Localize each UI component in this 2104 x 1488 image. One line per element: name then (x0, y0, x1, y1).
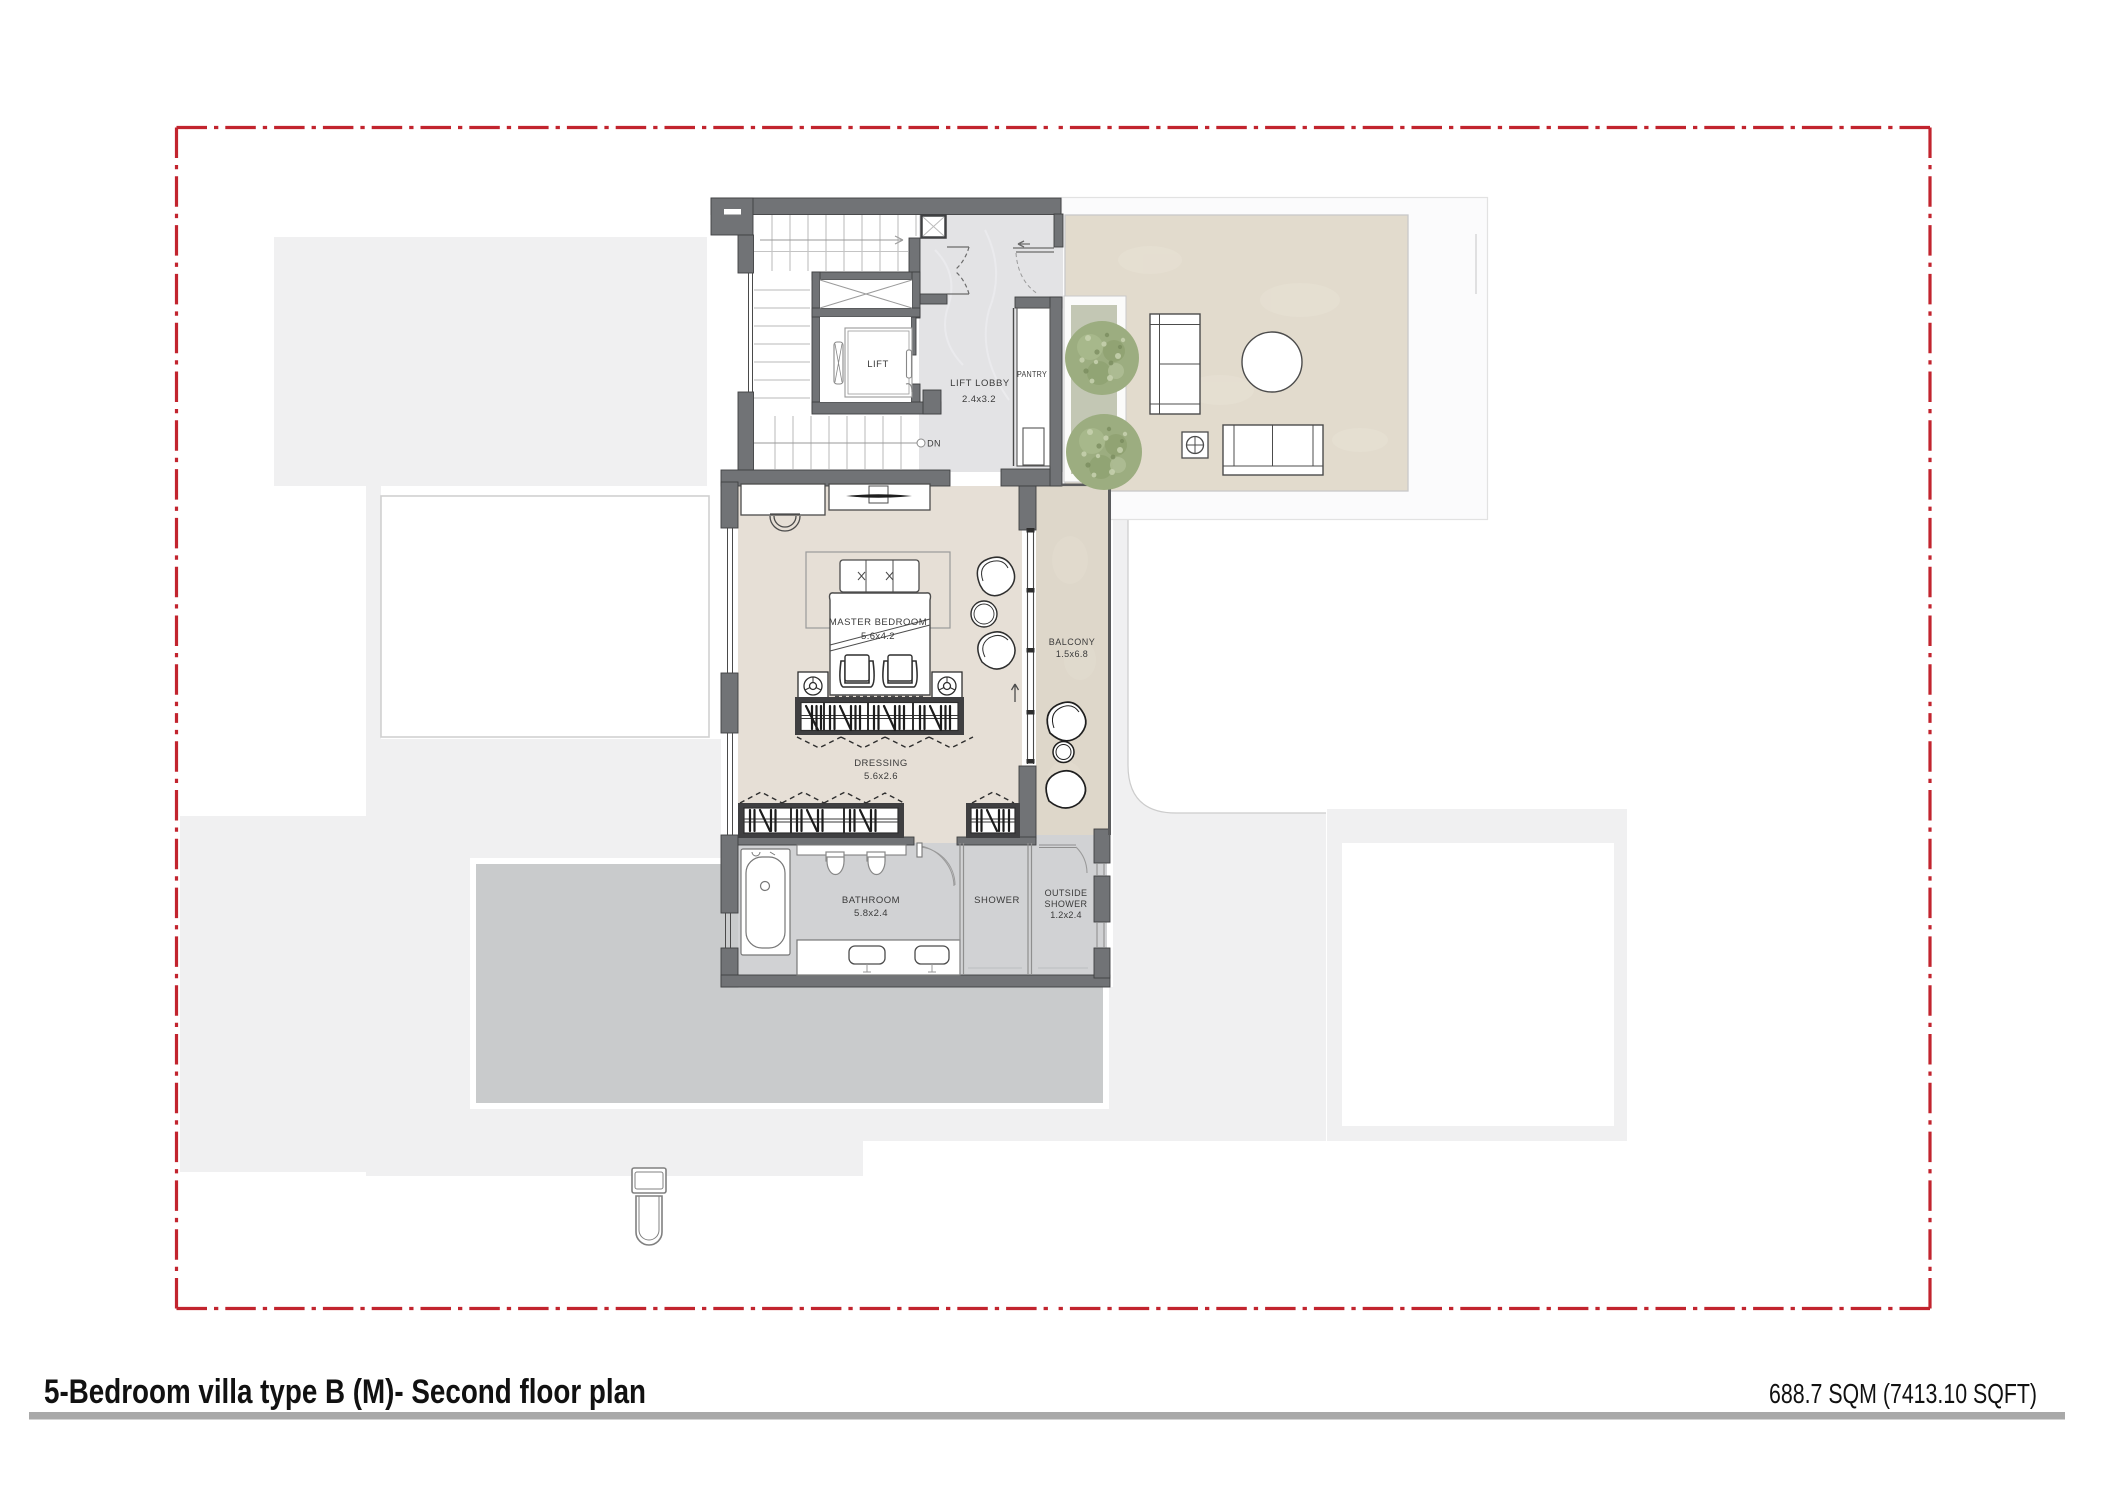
svg-text:5.8x2.4: 5.8x2.4 (854, 908, 888, 919)
svg-text:OUTSIDE: OUTSIDE (1045, 888, 1088, 898)
svg-text:SHOWER: SHOWER (974, 895, 1020, 906)
svg-text:LIFT: LIFT (867, 359, 889, 370)
svg-text:5.6x4.2: 5.6x4.2 (861, 631, 895, 642)
svg-text:SHOWER: SHOWER (1045, 899, 1088, 909)
svg-text:PANTRY: PANTRY (1017, 370, 1047, 379)
svg-text:2.4x3.2: 2.4x3.2 (962, 394, 996, 405)
svg-text:688.7 SQM (7413.10 SQFT): 688.7 SQM (7413.10 SQFT) (1769, 1378, 2037, 1409)
svg-text:MASTER BEDROOM: MASTER BEDROOM (829, 617, 927, 628)
svg-text:DRESSING: DRESSING (854, 758, 908, 769)
svg-text:1.2x2.4: 1.2x2.4 (1050, 910, 1082, 920)
svg-text:5.6x2.6: 5.6x2.6 (864, 771, 898, 782)
svg-text:1.5x6.8: 1.5x6.8 (1056, 649, 1088, 659)
svg-text:BALCONY: BALCONY (1049, 637, 1096, 647)
svg-text:DN: DN (927, 439, 941, 449)
svg-text:5-Bedroom villa type B (M)- Se: 5-Bedroom villa type B (M)- Second floor… (44, 1373, 646, 1411)
svg-text:LIFT LOBBY: LIFT LOBBY (950, 378, 1010, 389)
svg-text:BATHROOM: BATHROOM (842, 895, 900, 906)
